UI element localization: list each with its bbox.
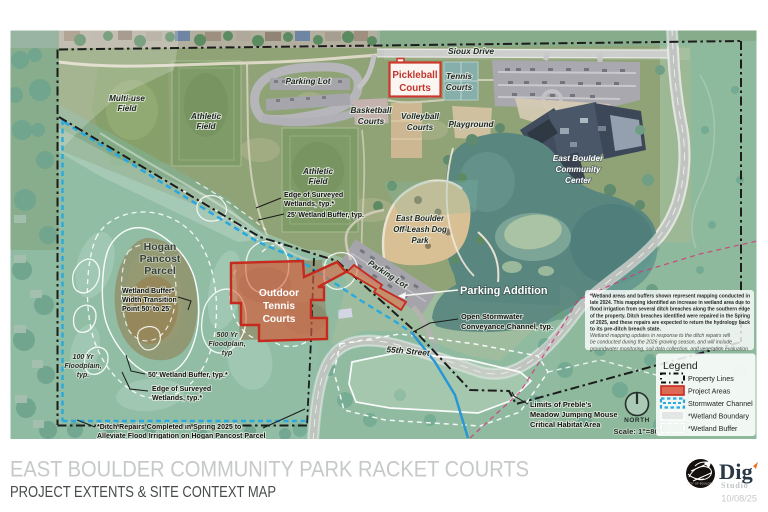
svg-text:*Wetland Boundary: *Wetland Boundary bbox=[688, 413, 749, 421]
svg-text:Parking Lot: Parking Lot bbox=[285, 77, 330, 86]
svg-text:Legend: Legend bbox=[663, 361, 698, 372]
svg-text:OutdoorTennisCourts: OutdoorTennisCourts bbox=[259, 288, 299, 325]
svg-text:Sioux Drive: Sioux Drive bbox=[448, 46, 494, 56]
svg-text:Property Lines: Property Lines bbox=[688, 375, 734, 383]
svg-text:10/08/25: 10/08/25 bbox=[721, 494, 757, 504]
svg-text:Playground: Playground bbox=[448, 120, 494, 129]
svg-text:25' Wetland Buffer, typ.: 25' Wetland Buffer, typ. bbox=[287, 212, 364, 219]
svg-text:CITY OF BOULDER: CITY OF BOULDER bbox=[687, 482, 713, 486]
svg-text:HoganPancostParcel: HoganPancostParcel bbox=[140, 241, 181, 277]
svg-text:Stormwater Channel: Stormwater Channel bbox=[688, 400, 753, 408]
svg-text:PROJECT EXTENTS & SITE CONTEXT: PROJECT EXTENTS & SITE CONTEXT MAP bbox=[10, 484, 276, 501]
svg-text:Project Areas: Project Areas bbox=[688, 388, 731, 396]
svg-text:Scale: 1"=80': Scale: 1"=80' bbox=[614, 427, 661, 436]
svg-text:NORTH: NORTH bbox=[624, 417, 650, 424]
svg-text:EAST BOULDER COMMUNITY PARK RA: EAST BOULDER COMMUNITY PARK RACKET COURT… bbox=[10, 457, 529, 482]
svg-text:Wetland mapping updates in res: Wetland mapping updates in response to t… bbox=[590, 333, 748, 352]
svg-text:*Wetland Buffer: *Wetland Buffer bbox=[688, 425, 738, 433]
svg-text:Parking Addition: Parking Addition bbox=[460, 285, 548, 297]
svg-text:Studio: Studio bbox=[721, 481, 749, 490]
svg-text:50' Wetland Buffer, typ.*: 50' Wetland Buffer, typ.* bbox=[148, 372, 228, 379]
svg-text:Wetland Buffer*Width Transitio: Wetland Buffer*Width TransitionPoint 50'… bbox=[122, 288, 177, 313]
